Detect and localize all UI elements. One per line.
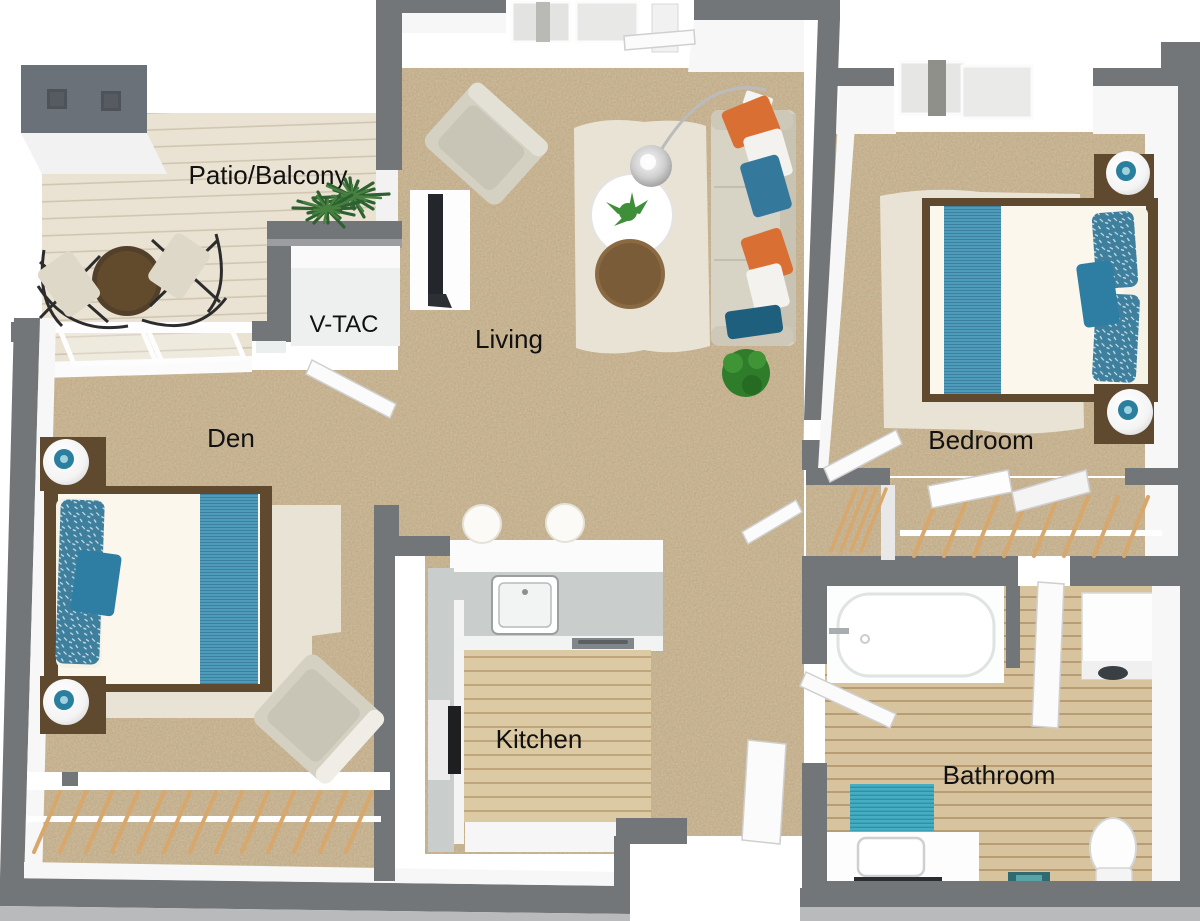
svg-text:Den: Den xyxy=(207,423,255,453)
svg-text:Kitchen: Kitchen xyxy=(496,724,583,754)
svg-text:V-TAC: V-TAC xyxy=(310,311,379,338)
svg-text:Bedroom: Bedroom xyxy=(928,425,1034,455)
svg-text:Living: Living xyxy=(475,324,543,354)
svg-text:Bathroom: Bathroom xyxy=(943,760,1056,790)
svg-text:Patio/Balcony: Patio/Balcony xyxy=(189,160,348,190)
